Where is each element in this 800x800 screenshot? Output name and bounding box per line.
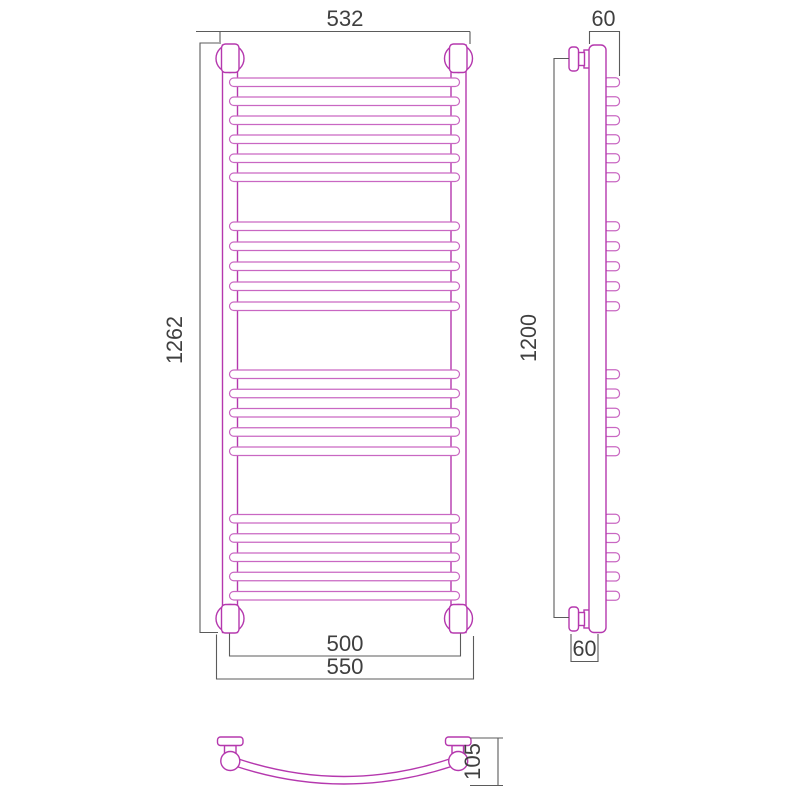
side-view <box>569 45 620 633</box>
dim-depth-top-label: 60 <box>592 6 616 31</box>
dim-overall-height-label: 1262 <box>162 316 187 364</box>
towel-rail <box>230 409 460 418</box>
front-rails <box>230 78 460 600</box>
dim-depth-bottom-label: 60 <box>573 636 597 661</box>
side-top-bracket-plate <box>569 47 579 71</box>
bottom-left-bracket <box>222 605 240 634</box>
front-right-tube <box>451 45 466 633</box>
towel-rail <box>230 370 460 379</box>
towel-rail <box>230 428 460 437</box>
bottom-right-bracket <box>450 605 468 634</box>
top-view-left-tube-section <box>221 752 240 771</box>
dim-overall-height: 1262 <box>162 43 219 633</box>
dim-depth-bottom: 60 <box>571 634 598 662</box>
side-top-bracket-stem <box>579 53 585 66</box>
towel-rail <box>230 572 460 581</box>
towel-rail <box>230 282 460 291</box>
side-bottom-bracket-stem <box>579 613 585 626</box>
drawing-canvas: 532 1262 60 1200 500 550 6 <box>0 0 800 800</box>
curved-rail-outer-arc <box>235 766 453 784</box>
top-view-left-wall-plate <box>218 737 244 746</box>
dim-curve-depth: 105 <box>460 738 503 786</box>
curved-rail-inner-arc <box>237 759 451 777</box>
radiator-technical-drawing: 532 1262 60 1200 500 550 6 <box>0 0 800 800</box>
towel-rail <box>230 262 460 271</box>
top-left-bracket <box>222 44 240 73</box>
towel-rail <box>230 135 460 144</box>
front-left-tube <box>223 45 238 633</box>
towel-rail <box>230 222 460 231</box>
towel-rail <box>230 389 460 398</box>
top-view <box>218 737 472 784</box>
towel-rail <box>230 242 460 251</box>
dim-mount-width-label: 550 <box>327 654 364 679</box>
dim-rail-width-label: 500 <box>327 631 364 656</box>
towel-rail <box>230 302 460 311</box>
side-bottom-bracket-plate <box>569 607 579 631</box>
towel-rail <box>230 173 460 182</box>
towel-rail <box>230 154 460 163</box>
dim-rail-width: 500 <box>230 631 461 656</box>
dim-side-height-label: 1200 <box>516 314 541 362</box>
dim-curve-depth-label: 105 <box>460 743 485 780</box>
towel-rail <box>230 592 460 601</box>
towel-rail <box>230 78 460 87</box>
dim-side-height: 1200 <box>516 59 569 618</box>
dim-top-width: 532 <box>196 6 470 44</box>
towel-rail <box>230 97 460 106</box>
towel-rail <box>230 116 460 125</box>
top-right-bracket <box>450 44 468 73</box>
towel-rail <box>230 447 460 456</box>
front-view <box>216 44 473 633</box>
towel-rail <box>230 515 460 524</box>
towel-rail <box>230 534 460 543</box>
side-tube <box>589 45 606 633</box>
dim-top-width-label: 532 <box>327 6 364 31</box>
towel-rail <box>230 553 460 562</box>
